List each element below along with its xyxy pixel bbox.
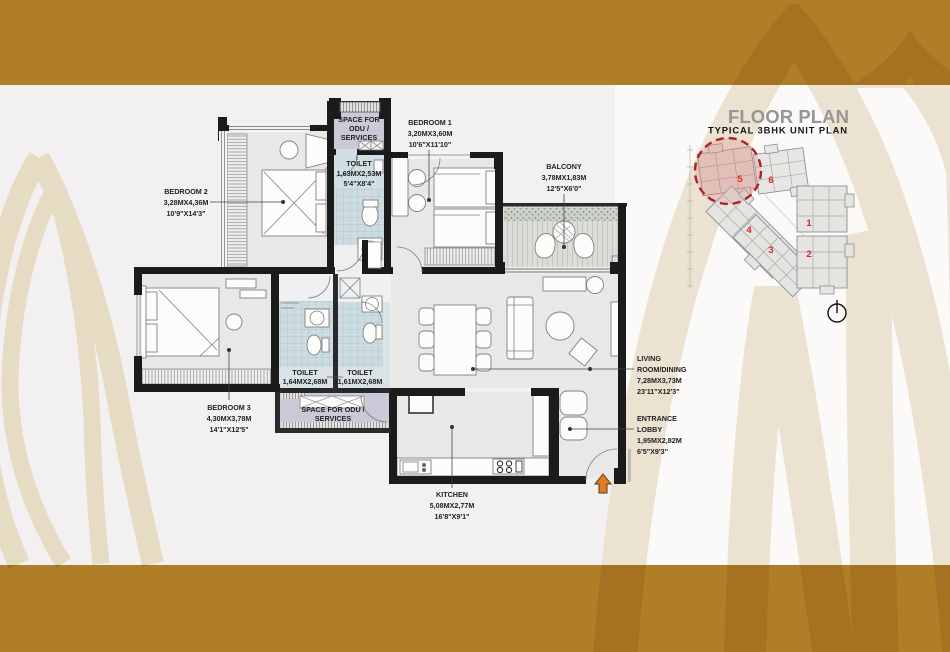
svg-text:1: 1 — [806, 218, 812, 229]
svg-text:BEDROOM 2: BEDROOM 2 — [164, 187, 208, 196]
svg-text:5'4"X8'10": 5'4"X8'10" — [342, 386, 377, 395]
svg-text:3,78MX1,83M: 3,78MX1,83M — [542, 173, 587, 182]
svg-text:ODU /: ODU / — [349, 124, 369, 133]
svg-text:6'5"X9'3": 6'5"X9'3" — [637, 447, 668, 456]
svg-text:1,95MX2,82M: 1,95MX2,82M — [637, 436, 682, 445]
svg-text:7,28MX3,73M: 7,28MX3,73M — [637, 376, 682, 385]
svg-text:3: 3 — [768, 245, 773, 256]
svg-text:1,64MX2,68M: 1,64MX2,68M — [283, 377, 328, 386]
svg-text:10'9"X14'3": 10'9"X14'3" — [166, 209, 205, 218]
svg-text:23'11"X12'3": 23'11"X12'3" — [637, 387, 680, 396]
svg-text:1,63MX2,53M: 1,63MX2,53M — [337, 169, 382, 178]
svg-text:BEDROOM 3: BEDROOM 3 — [207, 403, 251, 412]
svg-text:BALCONY: BALCONY — [546, 162, 582, 171]
svg-text:5'4"X8'4": 5'4"X8'4" — [343, 179, 374, 188]
svg-text:KITCHEN: KITCHEN — [436, 490, 468, 499]
svg-text:2: 2 — [806, 249, 811, 260]
svg-text:5: 5 — [737, 174, 743, 185]
svg-text:5,08MX2,77M: 5,08MX2,77M — [430, 501, 475, 510]
svg-text:TOILET: TOILET — [347, 368, 373, 377]
svg-text:SERVICES: SERVICES — [315, 414, 351, 423]
svg-text:12'5"X6'0": 12'5"X6'0" — [546, 184, 581, 193]
svg-text:14'1"X12'5": 14'1"X12'5" — [209, 425, 248, 434]
svg-text:SPACE FOR ODU /: SPACE FOR ODU / — [301, 405, 364, 414]
svg-text:LIVING: LIVING — [637, 354, 661, 363]
svg-text:TOILET: TOILET — [346, 159, 372, 168]
svg-text:LOBBY: LOBBY — [637, 425, 662, 434]
svg-text:TOILET: TOILET — [292, 368, 318, 377]
svg-text:BEDROOM 1: BEDROOM 1 — [408, 118, 452, 127]
svg-text:TYPICAL 3BHK UNIT PLAN: TYPICAL 3BHK UNIT PLAN — [708, 125, 847, 136]
svg-text:1,61MX2,68M: 1,61MX2,68M — [338, 377, 383, 386]
svg-text:3,20MX3,60M: 3,20MX3,60M — [408, 129, 453, 138]
svg-text:16'8"X9'1": 16'8"X9'1" — [434, 512, 469, 521]
svg-text:SPACE FOR: SPACE FOR — [338, 115, 380, 124]
svg-text:4,30MX3,78M: 4,30MX3,78M — [207, 414, 252, 423]
svg-text:SERVICES: SERVICES — [341, 133, 377, 142]
svg-text:5'5"X8'10": 5'5"X8'10" — [287, 386, 322, 395]
svg-text:3,28MX4,36M: 3,28MX4,36M — [164, 198, 209, 207]
svg-text:ROOM/DINING: ROOM/DINING — [637, 365, 687, 374]
svg-text:ENTRANCE: ENTRANCE — [637, 414, 677, 423]
svg-text:6: 6 — [768, 175, 773, 186]
svg-text:4: 4 — [746, 225, 752, 236]
svg-text:10'6"X11'10": 10'6"X11'10" — [409, 140, 452, 149]
